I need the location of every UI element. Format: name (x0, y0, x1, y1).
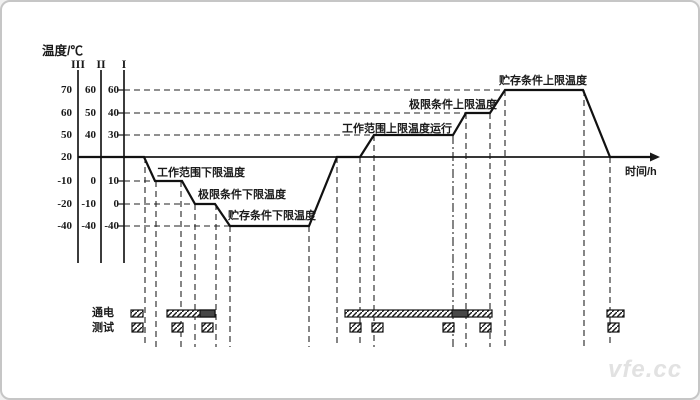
test-marker-1 (132, 323, 143, 332)
label-storage-condition-upper-limit: 贮存条件上限温度 (499, 72, 587, 88)
scale-III-value: 70 (40, 84, 72, 96)
scale-I-value: 30 (96, 129, 119, 141)
test-row-label: 测试 (92, 319, 114, 335)
label-storage-condition-lower-limit: 贮存条件下限温度 (228, 207, 316, 223)
scale-III-value: 20 (40, 151, 72, 163)
scale-II-value: 60 (74, 84, 96, 96)
power-bar-4 (607, 310, 624, 317)
scale-III-value: 60 (40, 107, 72, 119)
scale-III-value: -10 (40, 175, 72, 187)
power-on-row-label: 通电 (92, 304, 114, 320)
scale-II-value: -10 (74, 198, 96, 210)
scale-III-value: -40 (40, 220, 72, 232)
scale-header-III: III (66, 57, 90, 72)
power-on-bars (131, 310, 624, 317)
test-marker-3 (202, 323, 213, 332)
test-markers (132, 323, 619, 332)
test-marker-2 (172, 323, 183, 332)
label-limit-condition-lower-limit: 极限条件下限温度 (198, 186, 286, 202)
scale-III-value: -20 (40, 198, 72, 210)
power-bar-3-dark-segment (452, 310, 468, 317)
temperature-profile-chart: 温度/℃ 时间/h III II I 70 60 60 60 50 40 50 … (0, 0, 700, 400)
scale-header-I: I (112, 57, 136, 72)
test-marker-4 (350, 323, 361, 332)
scale-I-value: 60 (96, 84, 119, 96)
test-marker-6 (443, 323, 454, 332)
scale-header-II: II (89, 57, 113, 72)
power-bar-3 (345, 310, 492, 317)
label-limit-condition-upper-limit: 极限条件上限温度 (409, 96, 497, 112)
test-marker-8 (608, 323, 619, 332)
test-marker-7 (480, 323, 491, 332)
x-axis-title: 时间/h (625, 163, 657, 179)
scale-I-value: 0 (96, 198, 119, 210)
scale-I-value: -40 (96, 220, 119, 232)
watermark-vfe-cc: vfe.cc (608, 356, 682, 384)
label-working-range-lower-limit: 工作范围下限温度 (157, 164, 245, 180)
label-working-range-upper-limit-operation: 工作范围上限温度运行 (342, 120, 452, 136)
scale-III-value: 50 (40, 129, 72, 141)
power-bar-2-dark-segment (200, 310, 215, 317)
scale-I-value: 40 (96, 107, 119, 119)
scale-I-value: 10 (96, 175, 119, 187)
power-bar-1 (131, 310, 143, 317)
test-marker-5 (372, 323, 383, 332)
temperature-profile-curve (78, 90, 652, 226)
scale-II-value: -40 (74, 220, 96, 232)
scale-II-value: 40 (74, 129, 96, 141)
scale-II-value: 50 (74, 107, 96, 119)
scale-II-value: 0 (74, 175, 96, 187)
